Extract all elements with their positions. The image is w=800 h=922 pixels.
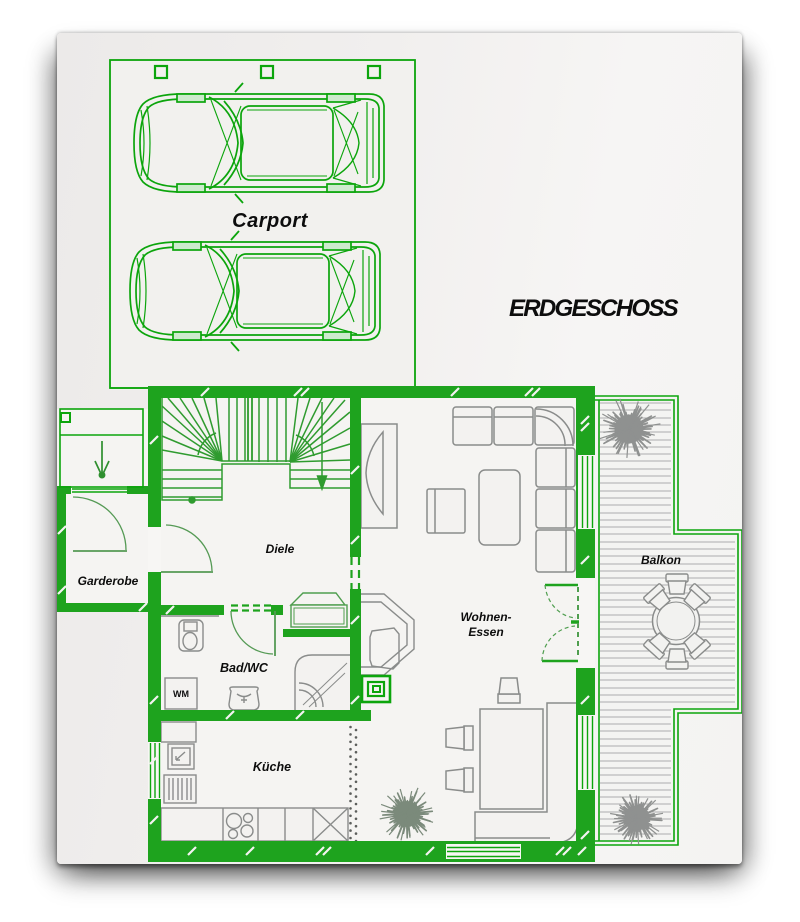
svg-text:Küche: Küche [253,760,291,774]
svg-text:ERDGESCHOSS: ERDGESCHOSS [509,295,679,322]
svg-text:WM: WM [173,689,189,699]
svg-text:Bad/WC: Bad/WC [220,661,269,675]
svg-text:Garderobe: Garderobe [78,574,139,588]
svg-text:Essen: Essen [468,625,503,639]
svg-text:Wohnen-: Wohnen- [460,610,511,624]
svg-text:Carport: Carport [232,210,309,232]
svg-text:Balkon: Balkon [641,553,681,567]
svg-text:Diele: Diele [266,542,295,556]
